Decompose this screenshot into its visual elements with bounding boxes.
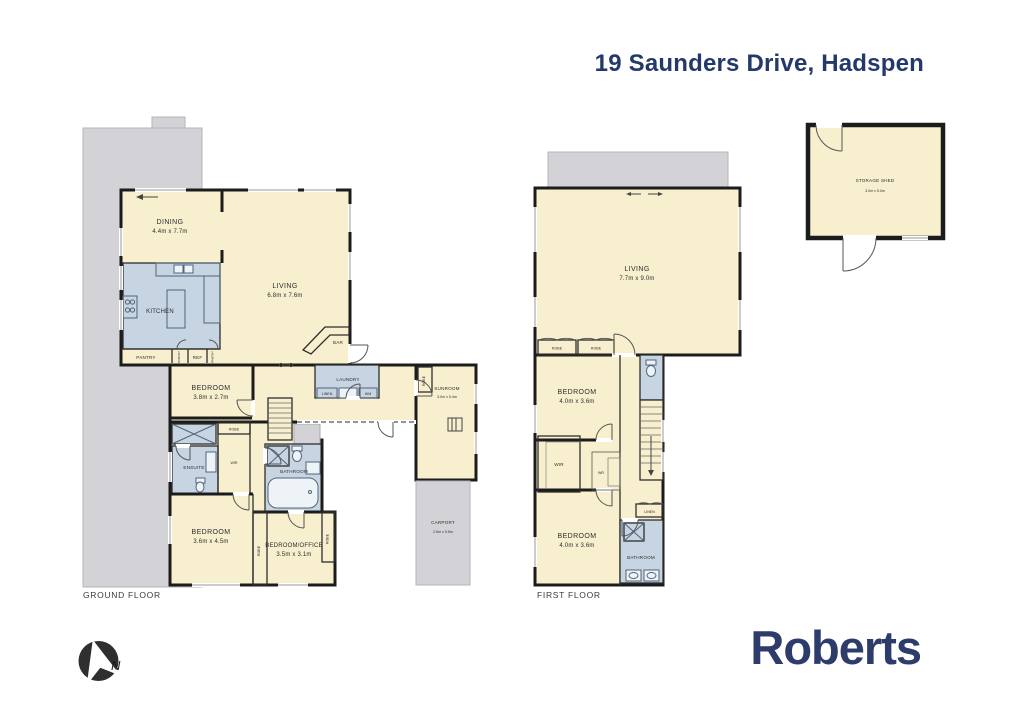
first-floor-caption: FIRST FLOOR [537, 590, 601, 600]
room-label-bedroom1: BEDROOM [192, 385, 231, 392]
driveway-step [152, 117, 185, 128]
vanity [626, 570, 641, 581]
room-label-pantry-small: PANTRY [177, 351, 181, 363]
room-label-bathroom: BATHROOM [280, 469, 308, 474]
room-label-living: LIVING [624, 266, 649, 273]
compass-north-letter: N [111, 658, 121, 673]
room-dims-bedroom1: 4.0m x 3.6m [559, 399, 594, 405]
floorplan-page: 19 Saunders Drive, Hadspen [0, 0, 1024, 725]
kitchen-sink [184, 265, 193, 273]
roof-area [548, 152, 728, 188]
room-label-living: LIVING [272, 283, 297, 290]
room-label-carport: CARPORT [431, 520, 455, 525]
room-label-sunroom: SUNROOM [434, 386, 459, 391]
room-dims-bedroom-office: 3.5m x 3.1m [276, 552, 311, 558]
room-label-ref: REF [193, 355, 203, 360]
room-label-bedroom2: BEDROOM [192, 529, 231, 536]
room-dims-storage-shed: 3.0m x 5.0m [865, 189, 885, 193]
room-label-bedroom2: BEDROOM [558, 533, 597, 540]
toilet [647, 366, 656, 377]
room-label-robe: ROBE [326, 533, 330, 544]
vanity [306, 462, 320, 474]
room-label-bar: BAR [333, 340, 344, 345]
north-compass: N [76, 635, 121, 685]
room-label-robe: ROBE [422, 375, 426, 386]
room-label-wir: WIR [554, 462, 564, 467]
room-dims-living: 7.7m x 9.0m [619, 276, 654, 282]
room-label-kitchen: KITCHEN [146, 309, 174, 315]
ground-floor-plan: DINING 4.4m x 7.7m LIVING 6.8m x 7.6m KI… [83, 117, 478, 600]
room-label-pantry-small: PANTRY [211, 351, 215, 363]
room-dims-carport: 2.6m x 5.5m [433, 530, 453, 534]
ground-floor-caption: GROUND FLOOR [83, 590, 161, 600]
room-label-wr: WR [598, 471, 604, 475]
room-label-bathroom: BATHROOM [627, 555, 655, 560]
room-label-robe: ROBE [229, 428, 240, 432]
room-label-robe: ROBE [591, 347, 602, 351]
room-dims-bedroom2: 4.0m x 3.6m [559, 543, 594, 549]
room-label-robe: ROBE [552, 347, 563, 351]
room-label-pantry: PANTRY [136, 355, 155, 360]
room-label-wir: WIR [231, 461, 238, 465]
room-label-bedroom-office: BEDROOM/OFFICE [265, 543, 322, 549]
staircase [268, 398, 292, 440]
room-dims-bedroom1: 3.8m x 2.7m [193, 395, 228, 401]
room-label-laundry: LAUNDRY [336, 377, 359, 382]
kitchen-sink [174, 265, 183, 273]
storage-shed-plan: STORAGE SHED 3.0m x 5.0m [808, 122, 943, 271]
room-label-linen: LINEN [322, 392, 333, 396]
stair-landing [294, 424, 320, 446]
vanity [644, 570, 659, 581]
room-label-ensuite: ENSUITE [183, 465, 204, 470]
toilet [293, 451, 302, 462]
room-dims-sunroom: 3.0m x 5.4m [437, 395, 457, 399]
toilet-cistern [646, 360, 656, 365]
agency-logo: Roberts [750, 620, 921, 675]
room-dims-dining: 4.4m x 7.7m [152, 229, 187, 235]
room-label-wm: WM [365, 392, 371, 396]
room-dims-bedroom2: 3.6m x 4.5m [193, 539, 228, 545]
toilet [196, 482, 204, 492]
room-dims-living: 6.8m x 7.6m [267, 293, 302, 299]
room-label-linen: LINEN [644, 510, 655, 514]
room-label-bedroom1: BEDROOM [558, 389, 597, 396]
room-label-dining: DINING [157, 219, 184, 226]
room-label-storage-shed: STORAGE SHED [856, 178, 895, 183]
first-floor-plan: LIVING 7.7m x 9.0m ROBE ROBE BEDROOM 4.0… [533, 152, 742, 600]
floorplan-drawing: DINING 4.4m x 7.7m LIVING 6.8m x 7.6m KI… [0, 0, 1024, 725]
vanity [206, 452, 216, 472]
room-label-robe: ROBE [257, 545, 261, 556]
